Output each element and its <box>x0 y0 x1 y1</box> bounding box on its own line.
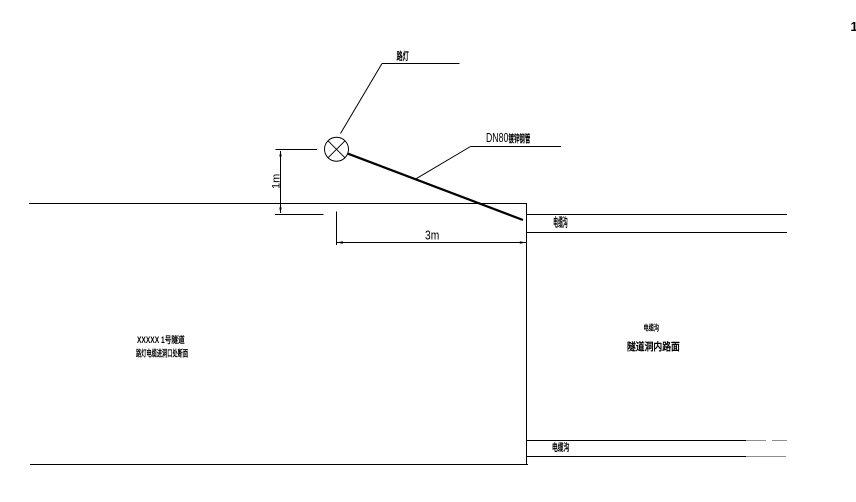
svg-text:隧道洞内路面: 隧道洞内路面 <box>627 339 680 353</box>
svg-text:1m: 1m <box>271 174 283 189</box>
svg-text:路灯: 路灯 <box>397 49 410 62</box>
svg-text:电缆沟: 电缆沟 <box>553 215 567 229</box>
svg-text:电缆沟: 电缆沟 <box>644 322 660 333</box>
svg-text:XXXXX 1号隧道: XXXXX 1号隧道 <box>137 334 185 345</box>
svg-text:DN80: DN80 <box>486 132 508 146</box>
svg-text:3m: 3m <box>425 230 439 243</box>
svg-text:镀锌钢管: 镀锌钢管 <box>509 132 531 145</box>
svg-text:1: 1 <box>851 19 856 34</box>
svg-text:路灯电缆进洞口处断面: 路灯电缆进洞口处断面 <box>136 348 189 359</box>
svg-text:电缆沟: 电缆沟 <box>552 441 569 453</box>
